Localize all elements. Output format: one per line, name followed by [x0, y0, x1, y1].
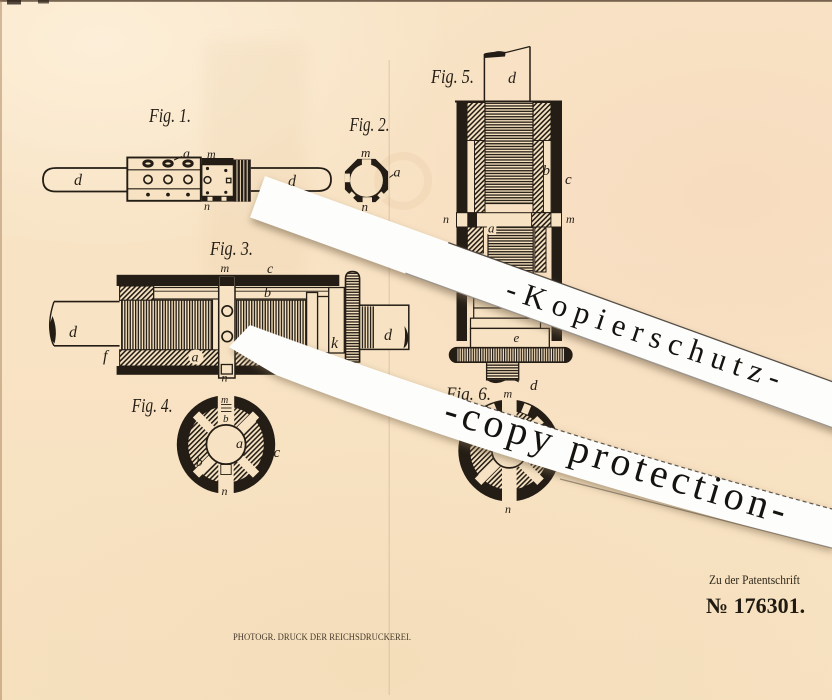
svg-text:c: c [274, 445, 281, 461]
svg-text:b: b [543, 163, 551, 179]
svg-text:c: c [267, 262, 274, 277]
svg-text:Fig. 3.: Fig. 3. [209, 238, 253, 260]
svg-text:a: a [394, 166, 401, 181]
svg-text:d: d [508, 70, 517, 87]
svg-text:b: b [223, 413, 229, 425]
svg-text:m: m [504, 387, 513, 401]
svg-text:Fig. 2.: Fig. 2. [349, 114, 390, 136]
svg-text:n: n [443, 212, 449, 226]
svg-text:m: m [221, 261, 230, 275]
svg-text:b: b [196, 454, 203, 469]
svg-text:m: m [566, 212, 575, 226]
svg-text:a: a [183, 147, 190, 162]
svg-text:PHOTOGR. DRUCK DER REICHSDRUCK: PHOTOGR. DRUCK DER REICHSDRUCKEREI. [233, 632, 411, 643]
svg-text:n: n [505, 502, 511, 516]
svg-text:d: d [74, 172, 83, 189]
svg-text:c: c [565, 172, 572, 188]
svg-text:d: d [530, 378, 538, 394]
svg-text:Fig. 1.: Fig. 1. [148, 105, 191, 127]
svg-text:k: k [331, 335, 339, 352]
svg-text:m: m [207, 147, 216, 161]
svg-text:b: b [264, 286, 271, 301]
svg-text:n: n [222, 371, 228, 385]
svg-text:f: f [103, 348, 110, 365]
svg-text:Zu der Patentschrift: Zu der Patentschrift [709, 573, 801, 587]
svg-text:e: e [514, 330, 520, 345]
svg-text:№ 176301.: № 176301. [706, 593, 805, 618]
svg-text:a: a [236, 437, 243, 452]
svg-text:a: a [488, 221, 495, 236]
svg-text:m: m [221, 395, 228, 406]
svg-text:a: a [192, 351, 199, 366]
svg-text:n: n [222, 484, 228, 498]
svg-text:Fig. 5.: Fig. 5. [430, 66, 474, 88]
svg-text:d: d [384, 327, 393, 344]
svg-text:Fig. 4.: Fig. 4. [131, 395, 173, 417]
svg-text:n: n [204, 199, 210, 213]
svg-text:m: m [361, 145, 370, 160]
svg-text:d: d [69, 324, 78, 341]
